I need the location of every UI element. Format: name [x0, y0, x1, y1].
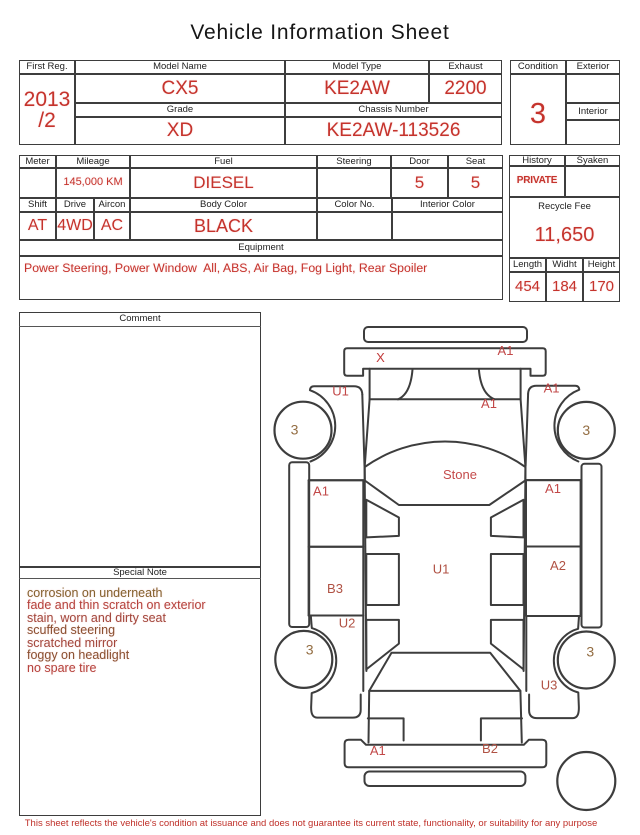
svg-text:U1: U1 — [433, 562, 450, 577]
svg-text:3: 3 — [291, 422, 299, 438]
svg-text:A1: A1 — [545, 481, 561, 496]
svg-text:A1: A1 — [544, 381, 560, 396]
svg-text:U1: U1 — [332, 384, 349, 399]
svg-text:Stone: Stone — [443, 467, 477, 482]
svg-text:A1: A1 — [481, 396, 497, 411]
svg-text:B3: B3 — [327, 581, 343, 596]
svg-text:X: X — [376, 350, 385, 365]
svg-text:A1: A1 — [313, 484, 329, 499]
svg-text:U3: U3 — [541, 678, 558, 693]
svg-text:B2: B2 — [482, 741, 498, 756]
svg-text:A1: A1 — [370, 743, 386, 758]
svg-text:A2: A2 — [550, 558, 566, 573]
svg-text:3: 3 — [582, 422, 590, 438]
svg-text:A1: A1 — [498, 343, 514, 358]
svg-text:3: 3 — [306, 642, 314, 658]
svg-text:U2: U2 — [339, 616, 356, 631]
svg-text:3: 3 — [586, 643, 594, 659]
